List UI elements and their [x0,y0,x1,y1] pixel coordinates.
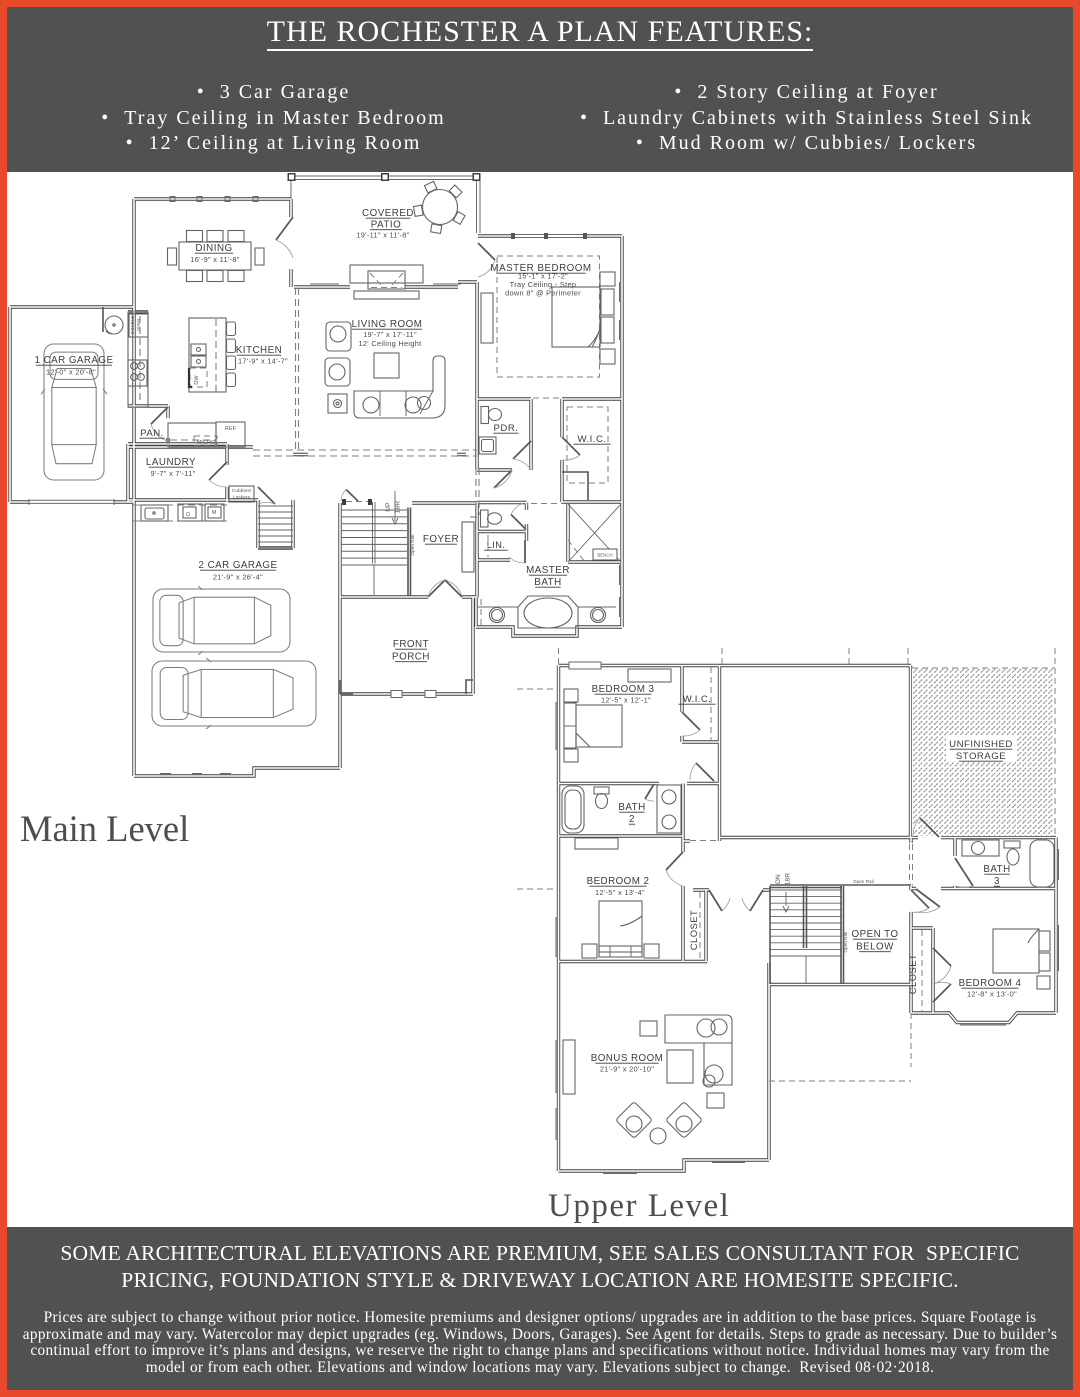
svg-text:3: 3 [994,876,1000,887]
svg-text:BATH: BATH [983,864,1010,875]
svg-text:M: M [212,510,217,516]
svg-text:12'-8" x 13'-0": 12'-8" x 13'-0" [967,990,1017,999]
svg-text:UNFINISHED: UNFINISHED [949,739,1013,750]
svg-text:17'-9" x 14'-7": 17'-9" x 14'-7" [238,357,288,366]
svg-text:W.I.C.: W.I.C. [577,434,606,445]
svg-text:MICRO: MICRO [197,440,216,446]
svg-text:CLOSET: CLOSET [688,910,699,951]
svg-text:PDR.: PDR. [494,423,519,434]
svg-text:Lockers: Lockers [233,495,251,501]
svg-text:16'-9" x 11'-8": 16'-9" x 11'-8" [190,255,239,264]
svg-text:PAN.: PAN. [140,428,164,439]
svg-text:BELOW: BELOW [856,942,894,953]
svg-text:BEDROOM 3: BEDROOM 3 [592,684,655,695]
svg-text:BEDROOM 4: BEDROOM 4 [959,978,1022,989]
svg-text:BATH: BATH [534,577,561,588]
svg-text:21'-9" x 26'-4": 21'-9" x 26'-4" [213,573,263,582]
svg-text:19'-11" x 11'-8": 19'-11" x 11'-8" [356,231,409,240]
svg-text:DW: DW [194,375,200,385]
svg-text:18R: 18R [395,501,402,514]
svg-text:2 CAR GARAGE: 2 CAR GARAGE [199,560,278,571]
svg-text:BONUS ROOM: BONUS ROOM [591,1053,664,1064]
svg-text:2: 2 [629,814,635,825]
svg-text:REF: REF [225,426,237,432]
svg-text:KITCHEN: KITCHEN [236,345,283,356]
svg-text:12'-5" x 12'-1": 12'-5" x 12'-1" [601,696,651,705]
svg-text:Open Rail: Open Rail [843,932,848,953]
svg-text:BATH: BATH [618,802,645,813]
svg-text:Open Rail: Open Rail [410,535,415,556]
svg-text:Cubbies/: Cubbies/ [232,488,252,494]
svg-text:DN: DN [775,874,782,884]
svg-text:COVERED: COVERED [362,208,414,219]
svg-text:OPEN TO: OPEN TO [852,929,899,940]
svg-text:Open Rail: Open Rail [853,879,874,884]
svg-text:DOUBLE: DOUBLE [130,316,135,335]
svg-text:9'-7" x 7'-11": 9'-7" x 7'-11" [151,469,196,478]
svg-text:MASTER: MASTER [526,565,570,576]
svg-text:D: D [186,512,192,516]
svg-text:BEDROOM 2: BEDROOM 2 [587,876,650,887]
svg-text:21'-9" x 20'-10": 21'-9" x 20'-10" [600,1065,654,1074]
svg-text:12'-5" x 13'-4": 12'-5" x 13'-4" [595,888,645,897]
svg-text:19'-7" x 17'-11": 19'-7" x 17'-11" [363,330,417,339]
svg-text:LIN.: LIN. [487,540,505,550]
svg-text:CLOSET: CLOSET [907,954,918,995]
svg-text:DINING: DINING [195,243,232,254]
svg-text:FRONT: FRONT [393,639,429,650]
svg-text:12'-0" x 20'-8": 12'-0" x 20'-8" [46,368,96,377]
svg-text:LAUNDRY: LAUNDRY [146,457,196,468]
svg-text:1 CAR GARAGE: 1 CAR GARAGE [35,355,114,366]
svg-text:PATIO: PATIO [371,220,401,231]
svg-text:PORCH: PORCH [392,652,430,663]
svg-text:LIVING ROOM: LIVING ROOM [352,319,423,330]
svg-text:OVEN: OVEN [136,319,141,332]
svg-text:W.I.C.: W.I.C. [683,694,712,705]
svg-text:down 8" @ Perimeter: down 8" @ Perimeter [505,289,581,298]
svg-text:STORAGE: STORAGE [956,751,1006,762]
svg-text:BENCH: BENCH [597,553,612,558]
svg-text:12' Ceiling Height: 12' Ceiling Height [358,339,421,348]
svg-text:FOYER: FOYER [423,534,459,545]
svg-text:18R: 18R [785,873,792,886]
svg-text:UP: UP [385,502,392,511]
